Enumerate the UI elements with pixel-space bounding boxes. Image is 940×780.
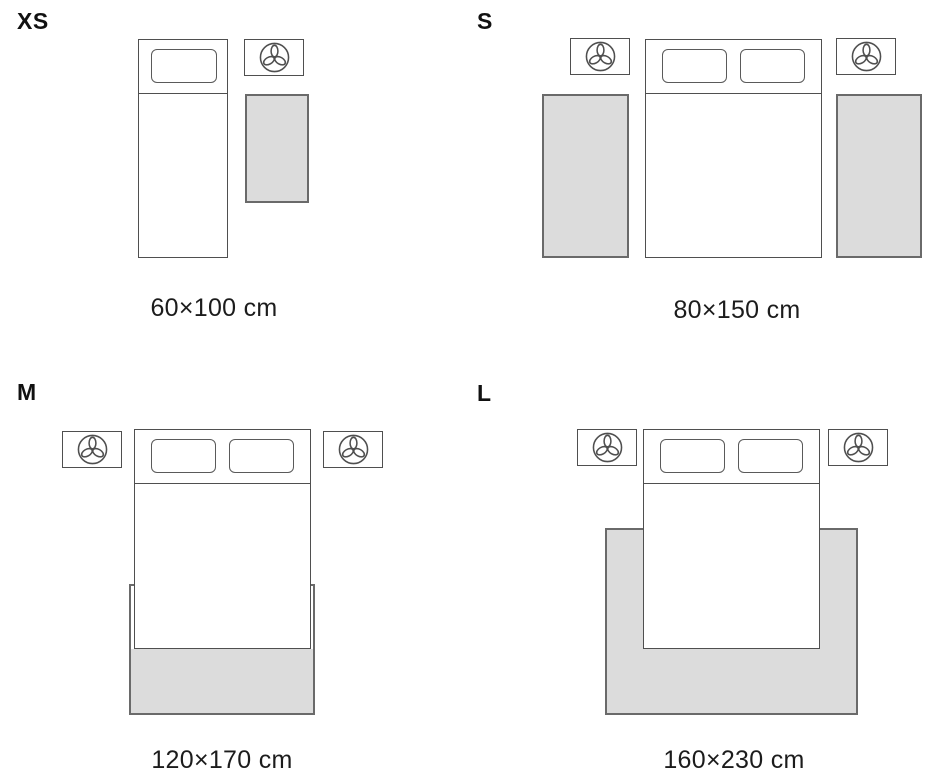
bed-double: [645, 39, 822, 258]
pillow: [662, 49, 727, 83]
plant-icon: [592, 432, 623, 463]
rug-m-visible-area: [131, 649, 313, 713]
nightstand: [828, 429, 888, 466]
bed-double: [643, 429, 820, 649]
nightstand: [62, 431, 122, 468]
pillow: [738, 439, 803, 473]
bed-headboard: [139, 40, 227, 94]
dimension-label-m: 120×170 cm: [72, 746, 372, 775]
nightstand: [570, 38, 630, 75]
rug-xs: [245, 94, 309, 203]
plant-icon: [851, 41, 882, 72]
bed-headboard: [646, 40, 821, 94]
dimension-label-s: 80×150 cm: [587, 296, 887, 325]
nightstand: [323, 431, 383, 468]
pillow: [151, 49, 217, 83]
pillow: [660, 439, 725, 473]
plant-icon: [338, 434, 369, 465]
plant-icon: [585, 41, 616, 72]
pillow: [229, 439, 294, 473]
pillow: [740, 49, 805, 83]
size-label-m: M: [17, 379, 37, 406]
nightstand: [244, 39, 304, 76]
plant-icon: [843, 432, 874, 463]
dimension-label-l: 160×230 cm: [584, 746, 884, 775]
nightstand: [577, 429, 637, 466]
pillow: [151, 439, 216, 473]
bed-double: [134, 429, 311, 649]
rug-s-left: [542, 94, 629, 258]
bed-single: [138, 39, 228, 258]
dimension-label-xs: 60×100 cm: [64, 294, 364, 323]
bed-headboard: [644, 430, 819, 484]
rug-s-right: [836, 94, 922, 258]
plant-icon: [77, 434, 108, 465]
size-label-l: L: [477, 380, 492, 407]
plant-icon: [259, 42, 290, 73]
size-label-s: S: [477, 8, 493, 35]
nightstand: [836, 38, 896, 75]
rug-size-guide: XS 60×100 cm S 80×150 cm: [0, 0, 940, 780]
size-label-xs: XS: [17, 8, 49, 35]
bed-headboard: [135, 430, 310, 484]
